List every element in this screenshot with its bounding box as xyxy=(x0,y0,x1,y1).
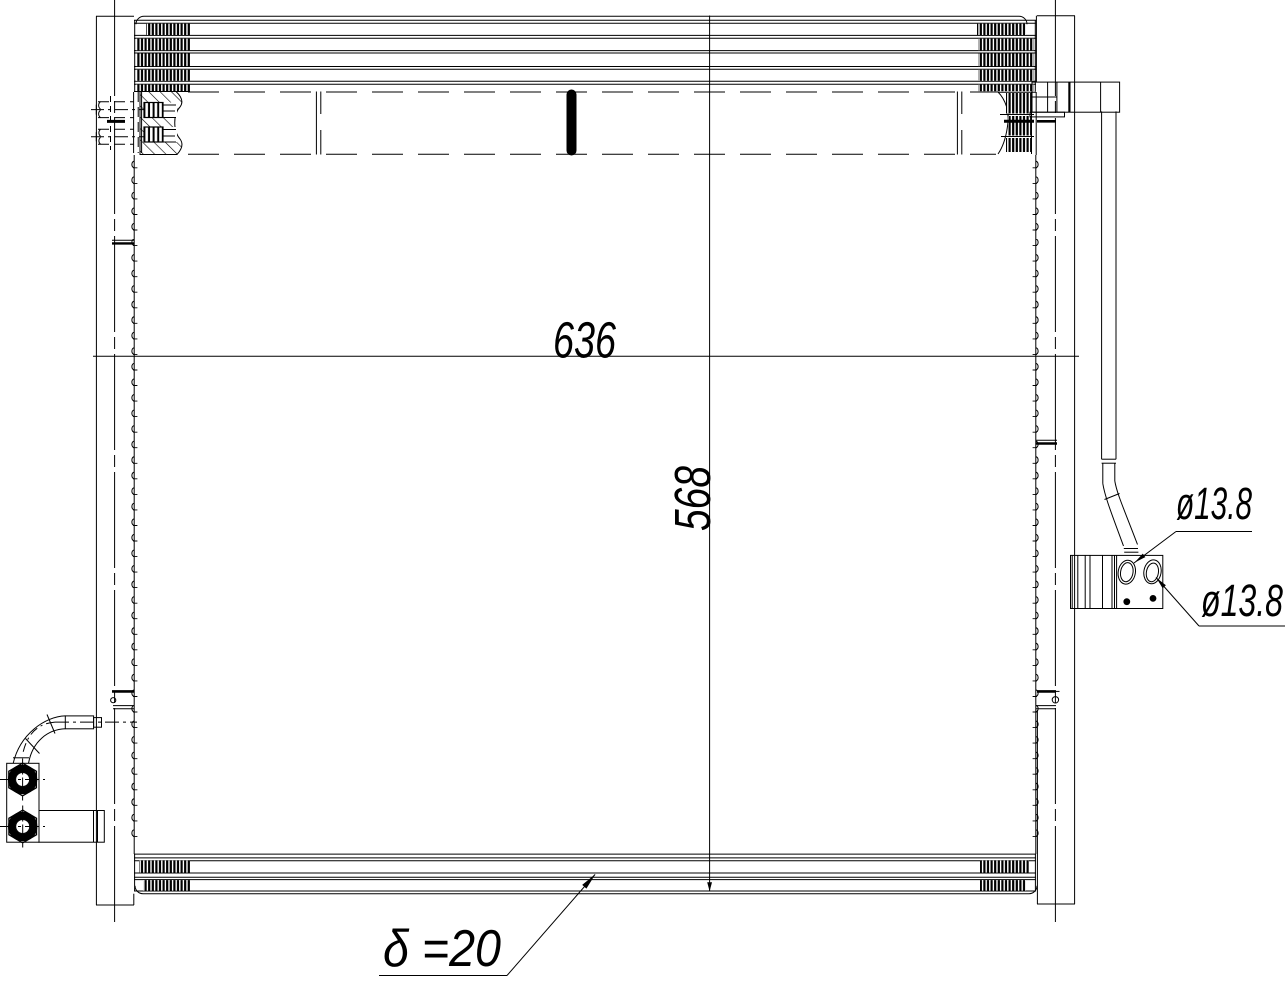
svg-text:568: 568 xyxy=(664,466,721,531)
svg-text:δ =20: δ =20 xyxy=(383,920,501,978)
svg-text:ø13.8: ø13.8 xyxy=(1201,575,1283,626)
svg-text:ø13.8: ø13.8 xyxy=(1176,478,1252,529)
svg-text:636: 636 xyxy=(553,312,616,369)
